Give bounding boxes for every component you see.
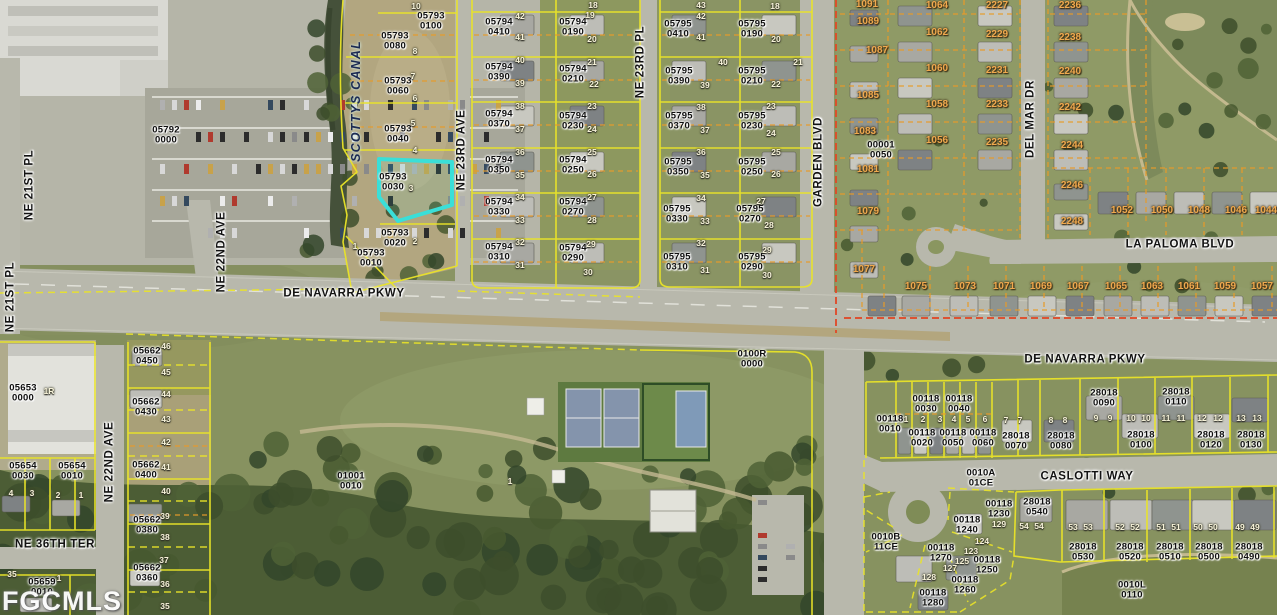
lot-number-label: 9 — [1094, 414, 1099, 423]
parcel-id-label: 28018 0500 — [1195, 542, 1222, 561]
street-label: NE 23RD AVE — [456, 110, 468, 191]
lot-number-label: 20 — [771, 35, 780, 44]
lot-number-label: 52 — [1130, 523, 1139, 532]
parcel-id-label: 28018 0520 — [1116, 542, 1143, 561]
parcel-id-label: 00118 1240 — [954, 515, 981, 534]
house-number-label: 1057 — [1251, 282, 1273, 292]
lot-number-label: 2 — [56, 491, 61, 500]
lot-number-label: 11 — [1162, 414, 1171, 423]
lot-number-label: 23 — [766, 102, 775, 111]
aerial-parcel-map[interactable]: NE 21ST PLNE 21ST PLNE 22ND AVENE 22ND A… — [0, 0, 1277, 615]
lot-number-label: 54 — [1034, 522, 1043, 531]
lot-number-label: 42 — [161, 438, 170, 447]
lot-number-label: 23 — [587, 102, 596, 111]
parcel-id-label: 00118 0050 — [940, 428, 967, 447]
parcel-id-label: 05795 0270 — [736, 204, 763, 223]
house-number-label: 2248 — [1061, 217, 1083, 227]
lot-number-label: 34 — [696, 194, 705, 203]
house-number-label: 1071 — [993, 282, 1015, 292]
lot-number-label: 26 — [771, 170, 780, 179]
parcel-id-label: 05795 0310 — [663, 252, 690, 271]
lot-number-label: 7 — [1004, 416, 1009, 425]
lot-number-label: 31 — [700, 266, 709, 275]
parcel-id-label: 05662 0360 — [133, 563, 160, 582]
lot-number-label: 1R — [44, 387, 55, 396]
parcel-id-label: 28018 0530 — [1069, 542, 1096, 561]
lot-number-label: 32 — [515, 238, 524, 247]
street-label: CASLOTTI WAY — [1040, 471, 1133, 483]
parcel-id-label: 05662 0380 — [133, 515, 160, 534]
parcel-id-label: 28018 0110 — [1162, 387, 1189, 406]
lot-number-label: 30 — [583, 268, 592, 277]
parcel-id-label: 28018 0510 — [1156, 542, 1183, 561]
parcel-id-label: 05794 0370 — [485, 109, 512, 128]
street-label: NE 36TH TER — [15, 539, 95, 551]
house-number-label: 1089 — [857, 17, 879, 27]
lot-number-label: 4 — [9, 489, 14, 498]
street-label: NE 21ST PL — [5, 262, 17, 333]
parcel-id-label: 28018 0070 — [1002, 431, 1029, 450]
house-number-label: 1060 — [926, 64, 948, 74]
lot-number-label: 51 — [1171, 523, 1180, 532]
lot-number-label: 27 — [756, 197, 765, 206]
parcel-id-label: 00118 0040 — [946, 394, 973, 413]
parcel-id-label: 05794 0210 — [559, 64, 586, 83]
lot-number-label: 18 — [588, 1, 597, 10]
lot-number-label: 7 — [411, 72, 416, 81]
lot-number-label: 40 — [161, 487, 170, 496]
lot-number-label: 8 — [1049, 416, 1054, 425]
parcel-id-label: 00118 1270 — [928, 543, 955, 562]
house-number-label: 2235 — [986, 138, 1008, 148]
parcel-id-label: 00118 1250 — [974, 555, 1001, 574]
house-number-label: 1056 — [926, 136, 948, 146]
parcel-id-label: 00118 1230 — [986, 499, 1013, 518]
lot-number-label: 37 — [515, 125, 524, 134]
lot-number-label: 24 — [587, 125, 596, 134]
parcel-id-label: 05794 0250 — [559, 155, 586, 174]
parcel-id-label: 05794 0410 — [485, 17, 512, 36]
house-number-label: 1087 — [866, 46, 888, 56]
parcel-id-label: 0010A 01CE — [967, 468, 996, 487]
parcel-id-label: 05793 0060 — [384, 76, 411, 95]
lot-number-label: 2 — [413, 237, 418, 246]
lot-number-label: 31 — [515, 261, 524, 270]
lot-number-label: 20 — [587, 35, 596, 44]
house-number-label: 1065 — [1105, 282, 1127, 292]
parcel-id-label: 00118 0060 — [970, 428, 997, 447]
lot-number-label: 28 — [764, 221, 773, 230]
house-number-label: 1079 — [857, 207, 879, 217]
house-number-label: 1091 — [856, 0, 878, 10]
parcel-id-label: 05793 0030 — [379, 172, 406, 191]
lot-number-label: 128 — [922, 573, 936, 582]
parcel-id-label: 05794 0390 — [485, 62, 512, 81]
parcel-id-label: 05795 0210 — [738, 66, 765, 85]
lot-number-label: 41 — [161, 463, 170, 472]
parcel-id-label: 05793 0040 — [384, 124, 411, 143]
parcel-id-label: 05792 0000 — [152, 125, 179, 144]
house-number-label: 2229 — [986, 30, 1008, 40]
parcel-id-label: 05795 0410 — [664, 19, 691, 38]
parcel-id-label: 28018 0100 — [1127, 430, 1154, 449]
lot-number-label: 12 — [1213, 414, 1222, 423]
lot-number-label: 1 — [508, 477, 513, 486]
house-number-label: 1048 — [1188, 206, 1210, 216]
house-number-label: 2242 — [1059, 103, 1081, 113]
street-label: NE 22ND AVE — [216, 212, 228, 293]
lot-number-label: 9 — [1108, 414, 1113, 423]
lot-number-label: 54 — [1019, 522, 1028, 531]
lot-number-label: 13 — [1236, 414, 1245, 423]
house-number-label: 2238 — [1059, 33, 1081, 43]
house-number-label: 1058 — [926, 100, 948, 110]
parcel-id-label: 00118 1280 — [920, 588, 947, 607]
lot-number-label: 6 — [983, 415, 988, 424]
street-label: GARDEN BLVD — [813, 117, 825, 207]
lot-number-label: 43 — [161, 415, 170, 424]
parcel-id-label: 0010B 11CE — [872, 532, 901, 551]
street-label: NE 23RD PL — [635, 26, 647, 98]
parcel-id-label: 01001 0010 — [337, 471, 364, 490]
lot-number-label: 30 — [762, 271, 771, 280]
house-number-label: 1046 — [1225, 206, 1247, 216]
lot-number-label: 35 — [700, 171, 709, 180]
house-number-label: 1063 — [1141, 282, 1163, 292]
parcel-id-label: 05662 0450 — [133, 346, 160, 365]
lot-number-label: 28 — [587, 216, 596, 225]
street-label: NE 22ND AVE — [104, 422, 116, 503]
parcel-id-label: 05793 0100 — [417, 11, 444, 30]
lot-number-label: 3 — [409, 184, 414, 193]
parcel-id-label: 00001 0050 — [867, 140, 894, 159]
lot-number-label: 52 — [1115, 523, 1124, 532]
parcel-id-label: 05795 0190 — [738, 19, 765, 38]
lot-number-label: 3 — [938, 415, 943, 424]
lot-number-label: 45 — [161, 368, 170, 377]
lot-number-label: 33 — [700, 217, 709, 226]
parcel-id-label: 05795 0390 — [665, 66, 692, 85]
lot-number-label: 25 — [587, 148, 596, 157]
house-number-label: 1064 — [926, 1, 948, 11]
house-number-label: 1052 — [1111, 206, 1133, 216]
parcel-id-label: 05794 0290 — [559, 243, 586, 262]
house-number-label: 2236 — [1059, 1, 1081, 11]
lot-number-label: 38 — [160, 533, 169, 542]
lot-number-label: 10 — [1126, 414, 1135, 423]
lot-number-label: 21 — [793, 58, 802, 67]
lot-number-label: 35 — [7, 570, 16, 579]
house-number-label: 2246 — [1061, 181, 1083, 191]
lot-number-label: 36 — [696, 148, 705, 157]
parcel-id-label: 05795 0330 — [663, 204, 690, 223]
parcel-id-label: 05793 0010 — [357, 248, 384, 267]
lot-number-label: 4 — [952, 415, 957, 424]
lot-number-label: 22 — [771, 80, 780, 89]
lot-number-label: 1 — [904, 415, 909, 424]
lot-number-label: 5 — [411, 119, 416, 128]
parcel-id-label: 05654 0010 — [58, 461, 85, 480]
lot-number-label: 49 — [1250, 523, 1259, 532]
parcel-id-label: 05793 0020 — [381, 228, 408, 247]
parcel-id-label: 0100R 0000 — [738, 349, 767, 368]
lot-number-label: 37 — [700, 126, 709, 135]
house-number-label: 1044 — [1255, 206, 1277, 216]
parcel-id-label: 05662 0430 — [132, 397, 159, 416]
lot-number-label: 35 — [515, 171, 524, 180]
lot-number-label: 38 — [696, 103, 705, 112]
parcel-id-label: 05794 0350 — [485, 155, 512, 174]
lot-number-label: 29 — [762, 246, 771, 255]
lot-number-label: 46 — [161, 342, 170, 351]
lot-number-label: 53 — [1083, 523, 1092, 532]
lot-number-label: 124 — [975, 537, 989, 546]
lot-number-label: 41 — [515, 33, 524, 42]
mls-watermark: FGCMLS — [2, 586, 122, 615]
street-label: DEL MAR DR — [1025, 80, 1037, 158]
lot-number-label: 24 — [766, 129, 775, 138]
lot-number-label: 13 — [1252, 414, 1261, 423]
lot-number-label: 40 — [515, 56, 524, 65]
lot-number-label: 34 — [515, 193, 524, 202]
lot-number-label: 53 — [1068, 523, 1077, 532]
parcel-id-label: 05794 0190 — [559, 17, 586, 36]
lot-number-label: 22 — [589, 80, 598, 89]
house-number-label: 1085 — [857, 91, 879, 101]
lot-number-label: 39 — [700, 81, 709, 90]
lot-number-label: 27 — [587, 193, 596, 202]
parcel-id-label: 05794 0330 — [485, 197, 512, 216]
parcel-id-label: 00118 0020 — [909, 428, 936, 447]
street-label: DE NAVARRA PKWY — [283, 288, 404, 300]
lot-number-label: 10 — [1141, 414, 1150, 423]
lot-number-label: 7 — [1018, 416, 1023, 425]
lot-number-label: 49 — [1235, 523, 1244, 532]
lot-number-label: 19 — [585, 11, 594, 20]
lot-number-label: 1 — [353, 242, 358, 251]
lot-number-label: 44 — [161, 390, 170, 399]
lot-number-label: 35 — [160, 602, 169, 611]
parcel-id-label: 05795 0230 — [738, 111, 765, 130]
lot-number-label: 6 — [413, 94, 418, 103]
parcel-id-label: 28018 0090 — [1090, 388, 1117, 407]
house-number-label: 2231 — [986, 66, 1008, 76]
street-label: LA PALOMA BLVD — [1126, 239, 1235, 251]
lot-number-label: 39 — [160, 512, 169, 521]
lot-number-label: 8 — [413, 47, 418, 56]
parcel-id-label: 00118 0030 — [913, 394, 940, 413]
parcel-id-label: 05653 0000 — [9, 383, 36, 402]
parcel-id-label: 05795 0350 — [664, 157, 691, 176]
lot-number-label: 51 — [1156, 523, 1165, 532]
parcel-id-label: 05795 0370 — [665, 111, 692, 130]
lot-number-label: 41 — [696, 33, 705, 42]
lot-number-label: 50 — [1208, 523, 1217, 532]
parcel-id-label: 05793 0080 — [381, 31, 408, 50]
house-number-label: 1073 — [954, 282, 976, 292]
parcel-id-label: 05654 0030 — [9, 461, 36, 480]
house-number-label: 1069 — [1030, 282, 1052, 292]
house-number-label: 1050 — [1151, 206, 1173, 216]
lot-number-label: 123 — [964, 547, 978, 556]
house-number-label: 2227 — [986, 1, 1008, 11]
house-number-label: 1067 — [1067, 282, 1089, 292]
lot-number-label: 12 — [1197, 414, 1206, 423]
lot-number-label: 127 — [943, 564, 957, 573]
lot-number-label: 37 — [159, 556, 168, 565]
parcel-id-label: 28018 0490 — [1235, 542, 1262, 561]
house-number-label: 1062 — [926, 28, 948, 38]
lot-number-label: 8 — [1063, 416, 1068, 425]
house-number-label: 1061 — [1178, 282, 1200, 292]
lot-number-label: 36 — [515, 148, 524, 157]
lot-number-label: 2 — [921, 415, 926, 424]
lot-number-label: 11 — [1177, 414, 1186, 423]
parcel-id-label: 00118 1260 — [952, 575, 979, 594]
house-number-label: 1081 — [857, 165, 879, 175]
parcel-id-label: 05662 0400 — [132, 460, 159, 479]
lot-number-label: 42 — [515, 12, 524, 21]
lot-number-label: 36 — [160, 580, 169, 589]
parcel-id-label: 0010L 0110 — [1118, 580, 1146, 599]
lot-number-label: 38 — [515, 102, 524, 111]
parcel-id-label: 28018 0120 — [1197, 430, 1224, 449]
parcel-id-label: 05794 0230 — [559, 111, 586, 130]
house-number-label: 2244 — [1061, 141, 1083, 151]
map-labels: NE 21ST PLNE 21ST PLNE 22ND AVENE 22ND A… — [0, 0, 1277, 615]
lot-number-label: 4 — [413, 146, 418, 155]
parcel-id-label: 28018 0540 — [1023, 497, 1050, 516]
house-number-label: 1077 — [853, 265, 875, 275]
lot-number-label: 40 — [718, 58, 727, 67]
lot-number-label: 29 — [586, 240, 595, 249]
lot-number-label: 43 — [696, 1, 705, 10]
parcel-id-label: 28018 0080 — [1047, 431, 1074, 450]
lot-number-label: 21 — [587, 58, 596, 67]
lot-number-label: 32 — [696, 239, 705, 248]
lot-number-label: 1 — [57, 574, 62, 583]
lot-number-label: 18 — [770, 2, 779, 11]
street-label: DE NAVARRA PKWY — [1024, 354, 1145, 366]
parcel-id-label: 05794 0310 — [485, 242, 512, 261]
street-label: SCOTTYS CANAL — [350, 40, 363, 162]
house-number-label: 1075 — [905, 282, 927, 292]
lot-number-label: 10 — [411, 2, 420, 11]
lot-number-label: 42 — [696, 12, 705, 21]
house-number-label: 1059 — [1214, 282, 1236, 292]
parcel-id-label: 00118 0010 — [877, 414, 904, 433]
lot-number-label: 3 — [30, 489, 35, 498]
lot-number-label: 39 — [515, 79, 524, 88]
house-number-label: 2233 — [986, 100, 1008, 110]
parcel-id-label: 05795 0250 — [738, 157, 765, 176]
house-number-label: 2240 — [1059, 67, 1081, 77]
street-label: NE 21ST PL — [24, 150, 36, 221]
lot-number-label: 1 — [79, 491, 84, 500]
house-number-label: 1083 — [854, 127, 876, 137]
lot-number-label: 129 — [992, 520, 1006, 529]
lot-number-label: 33 — [515, 216, 524, 225]
parcel-id-label: 05794 0270 — [559, 197, 586, 216]
lot-number-label: 25 — [771, 148, 780, 157]
lot-number-label: 5 — [966, 415, 971, 424]
lot-number-label: 50 — [1193, 523, 1202, 532]
parcel-id-label: 28018 0130 — [1237, 430, 1264, 449]
lot-number-label: 26 — [587, 170, 596, 179]
